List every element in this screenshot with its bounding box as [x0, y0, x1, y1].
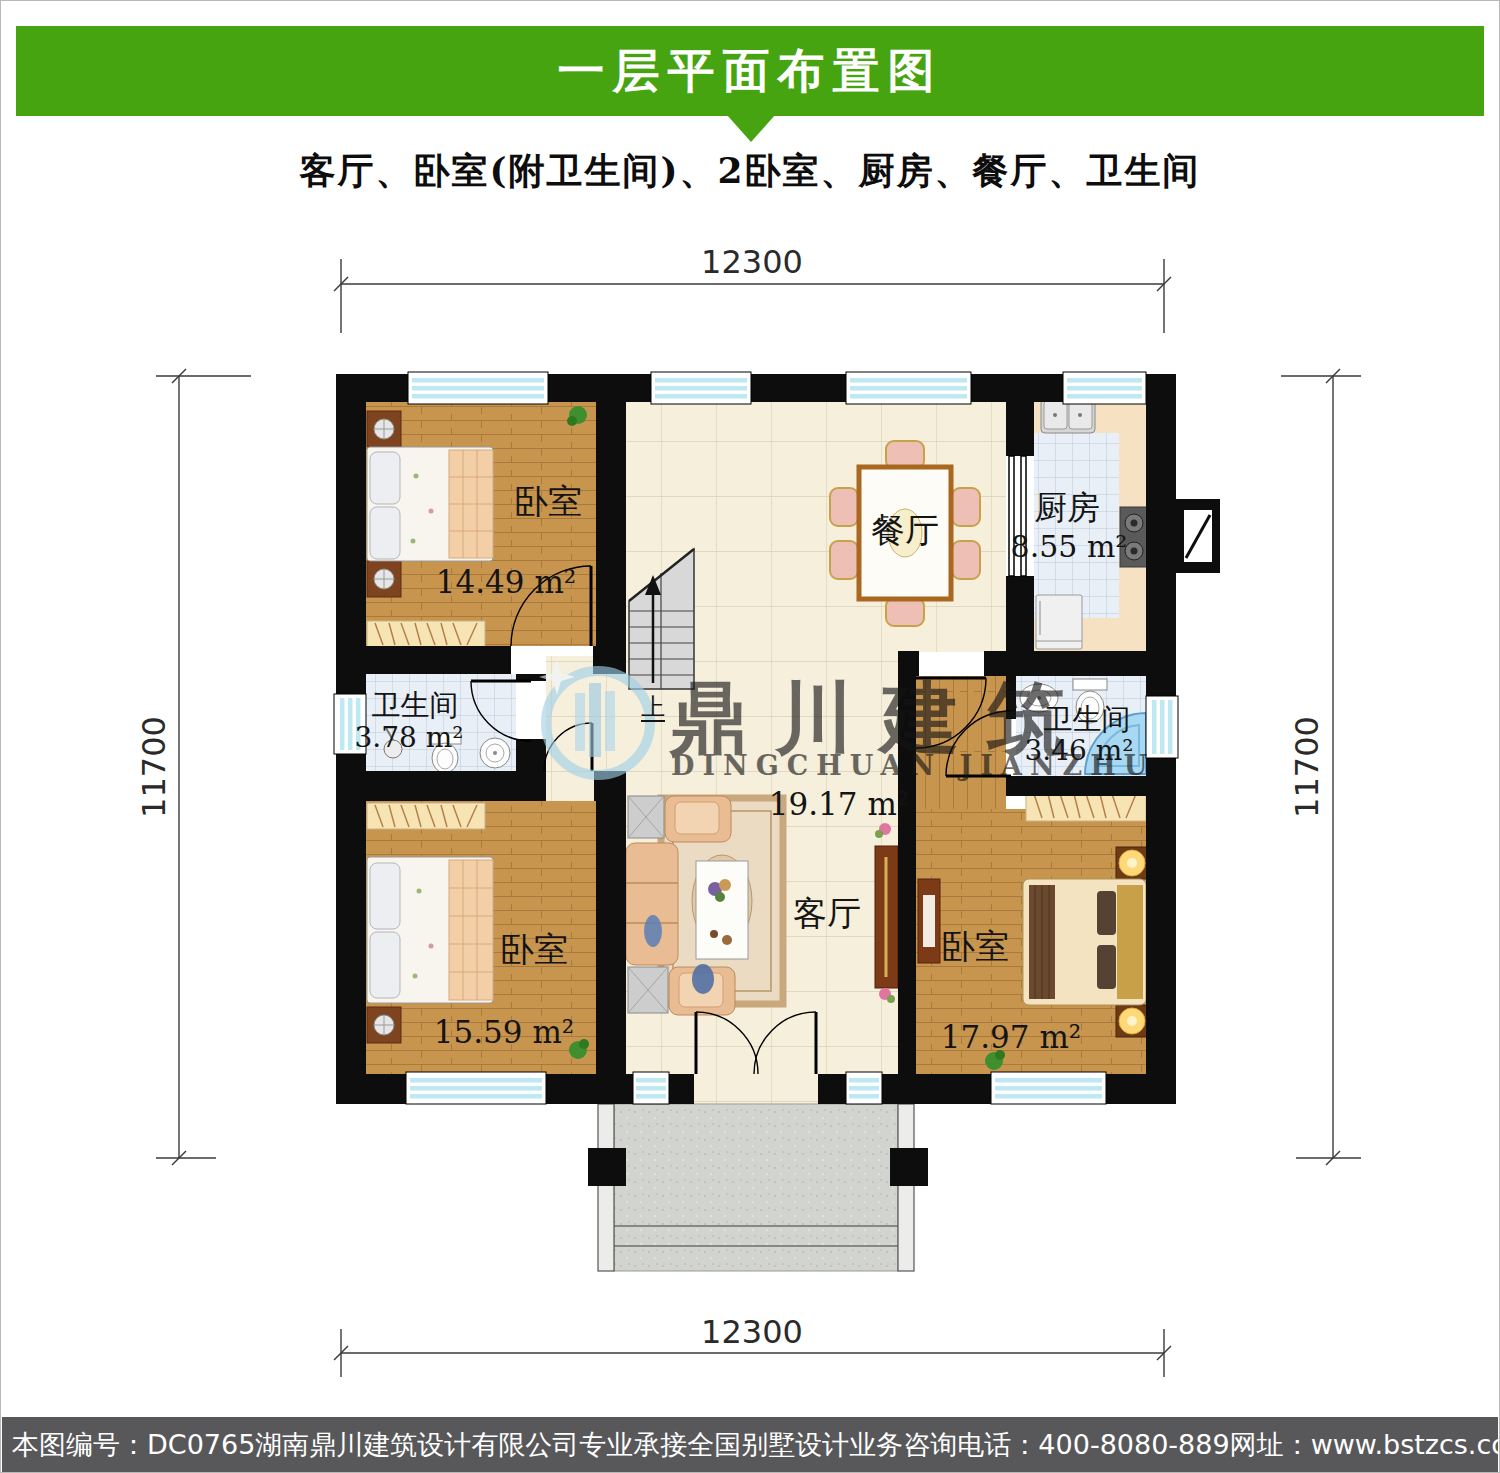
- phone: 咨询电话：400-8080-889: [903, 1427, 1229, 1463]
- stairs-up-label: 上: [641, 693, 665, 721]
- dining-chair: [886, 598, 924, 626]
- window: [1146, 696, 1178, 758]
- room-area: 17.97 m²: [941, 1019, 1081, 1055]
- dimension-bottom: 12300: [701, 1313, 803, 1351]
- person-figure: [692, 964, 714, 994]
- dining-chair: [952, 488, 980, 526]
- person-figure: [644, 915, 662, 947]
- window: [651, 372, 751, 404]
- porch-pier-left: [588, 1148, 626, 1186]
- room-area: 15.59 m²: [434, 1014, 574, 1050]
- dining-chair: [952, 541, 980, 579]
- entry-threshold: [694, 1074, 818, 1104]
- pillow: [1097, 945, 1116, 989]
- room-label: 卫生间: [372, 688, 459, 722]
- window: [408, 372, 548, 404]
- website: 网址：www.bstzcs.com: [1230, 1427, 1500, 1463]
- pillow: [370, 932, 400, 998]
- porch: [588, 1104, 928, 1271]
- room-area: 3.78 m²: [354, 721, 463, 754]
- window: [406, 1072, 546, 1104]
- dimension-right: 11700: [1288, 716, 1326, 818]
- room-label: 卧室: [941, 926, 1009, 966]
- window: [846, 372, 971, 404]
- room-area: 19.17 m²: [769, 786, 909, 822]
- page: 一层平面布置图 客厅、卧室(附卫生间)、2卧室、厨房、餐厅、卫生间: [0, 0, 1500, 1473]
- dimension-left: 11700: [135, 716, 173, 818]
- room-area: 3.46 m²: [1024, 734, 1133, 767]
- room-label: 客厅: [793, 893, 861, 933]
- room-area: 14.49 m²: [436, 564, 576, 600]
- window: [846, 1072, 882, 1104]
- company-name: 湖南鼎川建筑设计有限公司专业承接全国别墅设计业务: [255, 1427, 903, 1463]
- porch-column-right: [898, 1104, 914, 1271]
- dining-chair: [830, 541, 858, 579]
- porch-column-left: [598, 1104, 614, 1271]
- floor-plan: 鼎川建筑 DINGCHUAN JIANZHU 卧室 14.49 m² 餐厅 厨房…: [1, 1, 1500, 1473]
- room-label: 卫生间: [1044, 702, 1131, 736]
- room-label: 厨房: [1034, 488, 1100, 527]
- pillow: [370, 452, 400, 504]
- window: [991, 1072, 1106, 1104]
- room-label: 卧室: [514, 481, 582, 521]
- dimension-top: 12300: [701, 243, 803, 281]
- window: [1063, 372, 1146, 404]
- porch-pier-right: [890, 1148, 928, 1186]
- pillow: [1097, 891, 1116, 935]
- room-label: 餐厅: [871, 510, 939, 550]
- pillow: [370, 863, 400, 929]
- drawing-number: 本图编号：DC0765: [12, 1427, 255, 1463]
- room-label: 卧室: [500, 929, 568, 969]
- dining-chair: [830, 488, 858, 526]
- window: [633, 1072, 669, 1104]
- footer-bar: 本图编号：DC0765 湖南鼎川建筑设计有限公司专业承接全国别墅设计业务 咨询电…: [2, 1417, 1498, 1472]
- room-area: 8.55 m²: [1011, 529, 1128, 564]
- coffee-table: [696, 861, 748, 959]
- pillow: [370, 507, 400, 559]
